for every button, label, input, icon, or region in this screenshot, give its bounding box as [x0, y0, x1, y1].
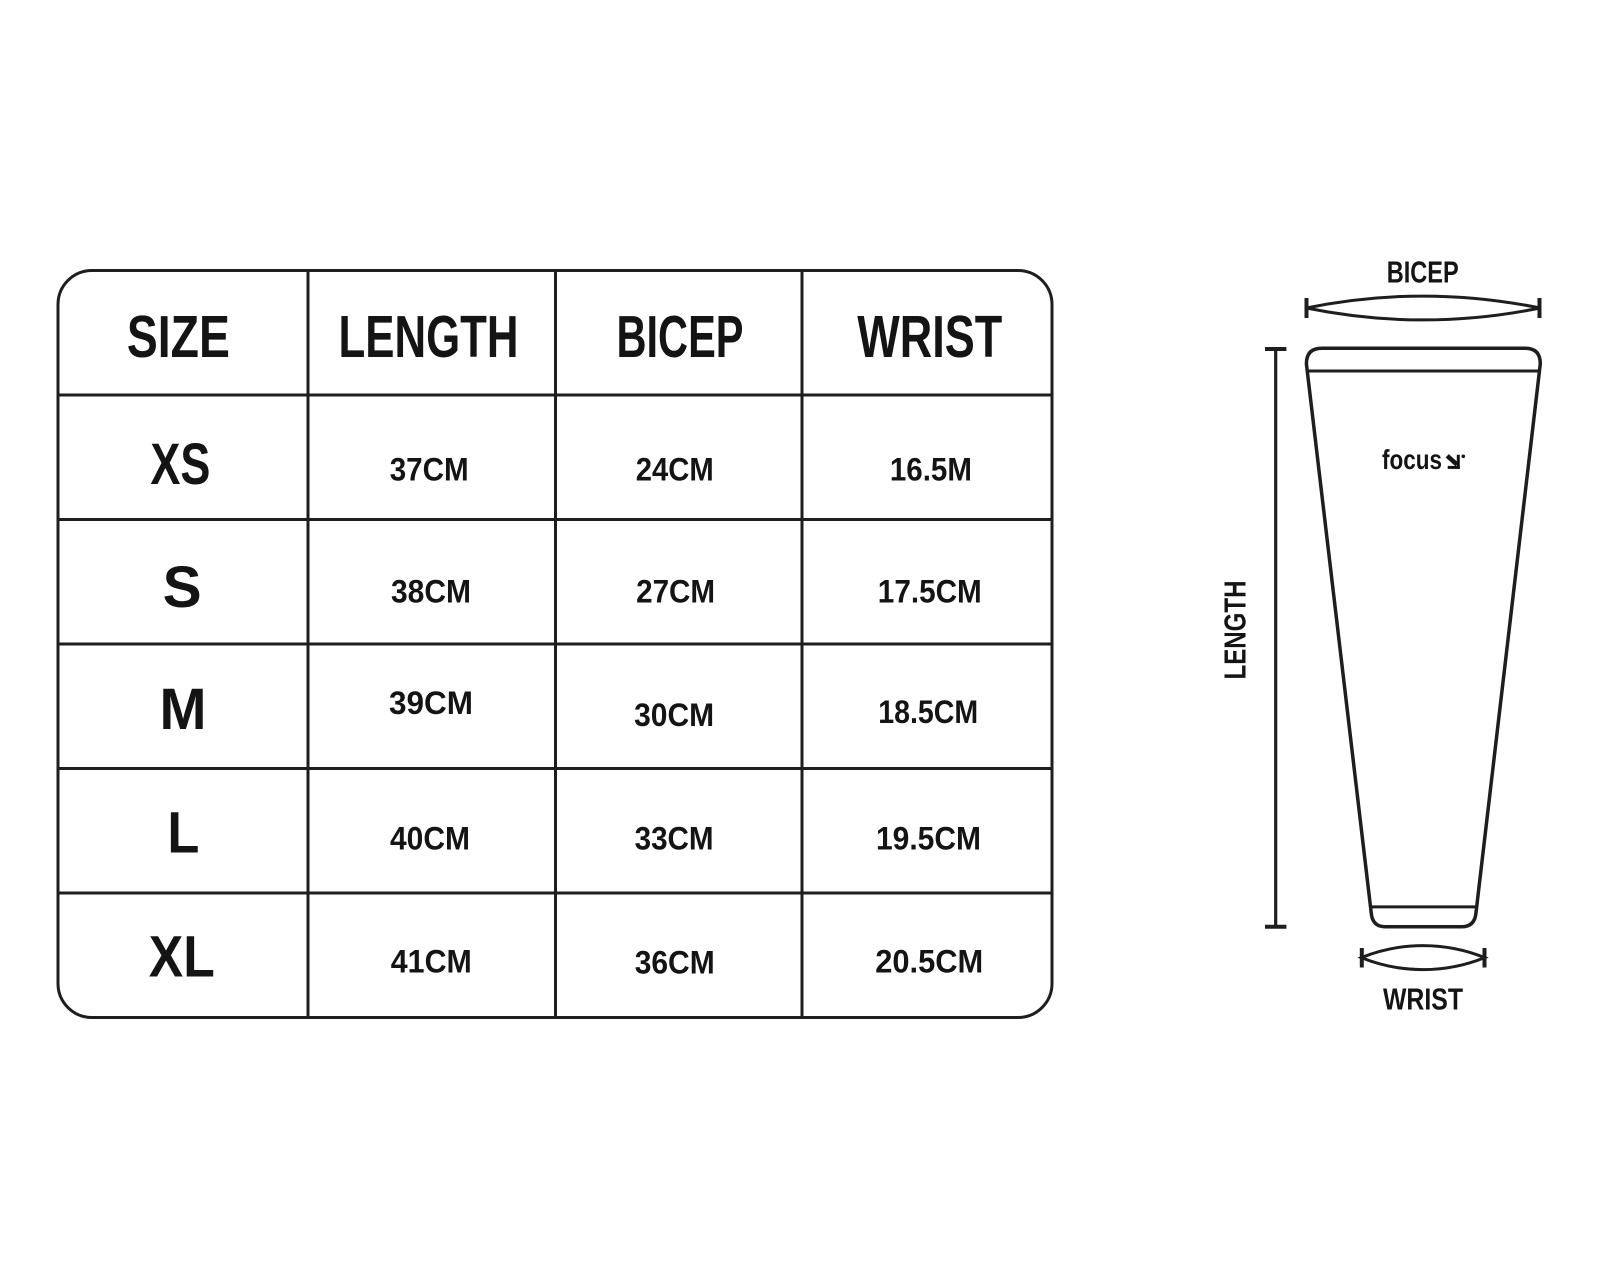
svg-text:WRIST: WRIST — [1383, 983, 1463, 1017]
svg-text:39CM: 39CM — [389, 685, 473, 721]
svg-text:XS: XS — [150, 432, 210, 497]
svg-text:38CM: 38CM — [391, 574, 471, 610]
svg-text:WRIST: WRIST — [857, 303, 1002, 370]
svg-text:18.5CM: 18.5CM — [878, 694, 978, 730]
svg-text:36CM: 36CM — [635, 944, 715, 980]
svg-text:24CM: 24CM — [636, 451, 714, 487]
svg-text:XL: XL — [149, 925, 215, 990]
svg-text:S: S — [163, 555, 202, 620]
svg-text:30CM: 30CM — [634, 697, 714, 733]
svg-text:41CM: 41CM — [391, 944, 472, 980]
svg-text:SIZE: SIZE — [127, 303, 230, 370]
svg-text:BICEP: BICEP — [1387, 256, 1459, 290]
svg-text:33CM: 33CM — [635, 820, 714, 856]
svg-text:16.5M: 16.5M — [890, 451, 972, 487]
svg-text:M: M — [160, 677, 207, 742]
svg-text:37CM: 37CM — [390, 451, 469, 487]
svg-text:19.5CM: 19.5CM — [876, 820, 981, 856]
svg-text:BICEP: BICEP — [617, 303, 744, 370]
svg-text:focus: focus — [1382, 444, 1442, 475]
svg-text:20.5CM: 20.5CM — [875, 944, 983, 980]
svg-text:LENGTH: LENGTH — [1219, 581, 1253, 680]
svg-text:L: L — [167, 800, 199, 865]
svg-text:LENGTH: LENGTH — [339, 303, 519, 370]
svg-text:27CM: 27CM — [636, 574, 715, 610]
svg-text:40CM: 40CM — [390, 820, 470, 856]
svg-text:17.5CM: 17.5CM — [878, 574, 982, 610]
